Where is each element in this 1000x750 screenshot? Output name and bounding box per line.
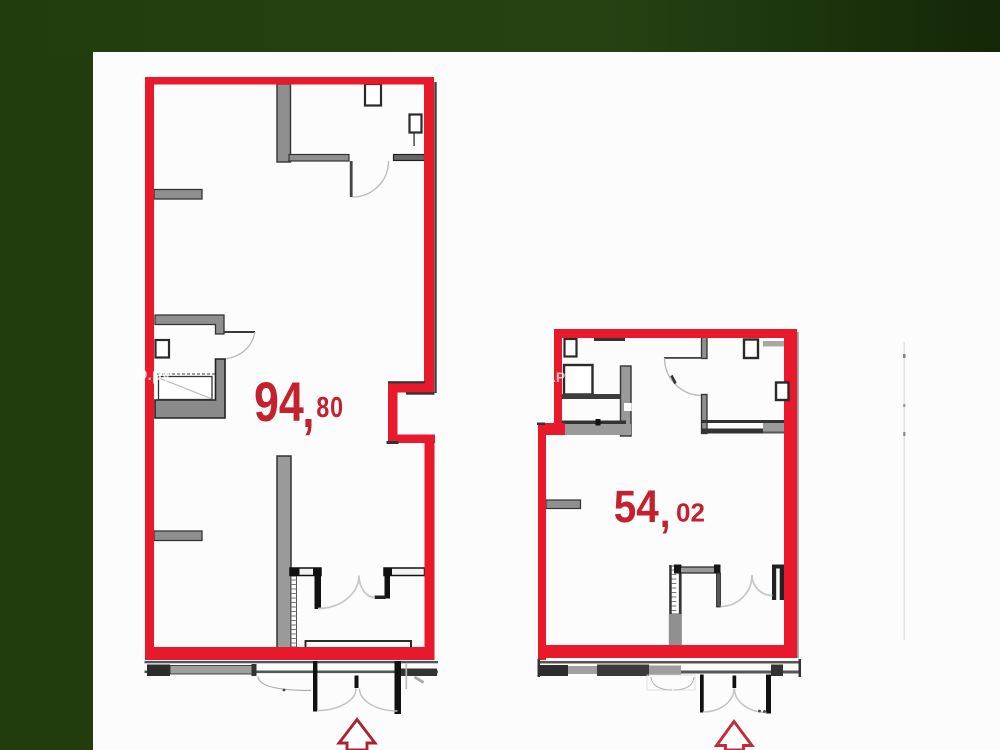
svg-text:80: 80 (316, 390, 343, 423)
svg-text:.Р: .Р (552, 369, 565, 385)
svg-text:О.ру: О.ру (135, 367, 170, 384)
svg-text:,: , (660, 488, 671, 536)
svg-text:02: 02 (676, 498, 705, 528)
svg-text:54: 54 (614, 482, 659, 532)
svg-text:94: 94 (254, 370, 304, 433)
svg-text:,: , (302, 380, 314, 440)
